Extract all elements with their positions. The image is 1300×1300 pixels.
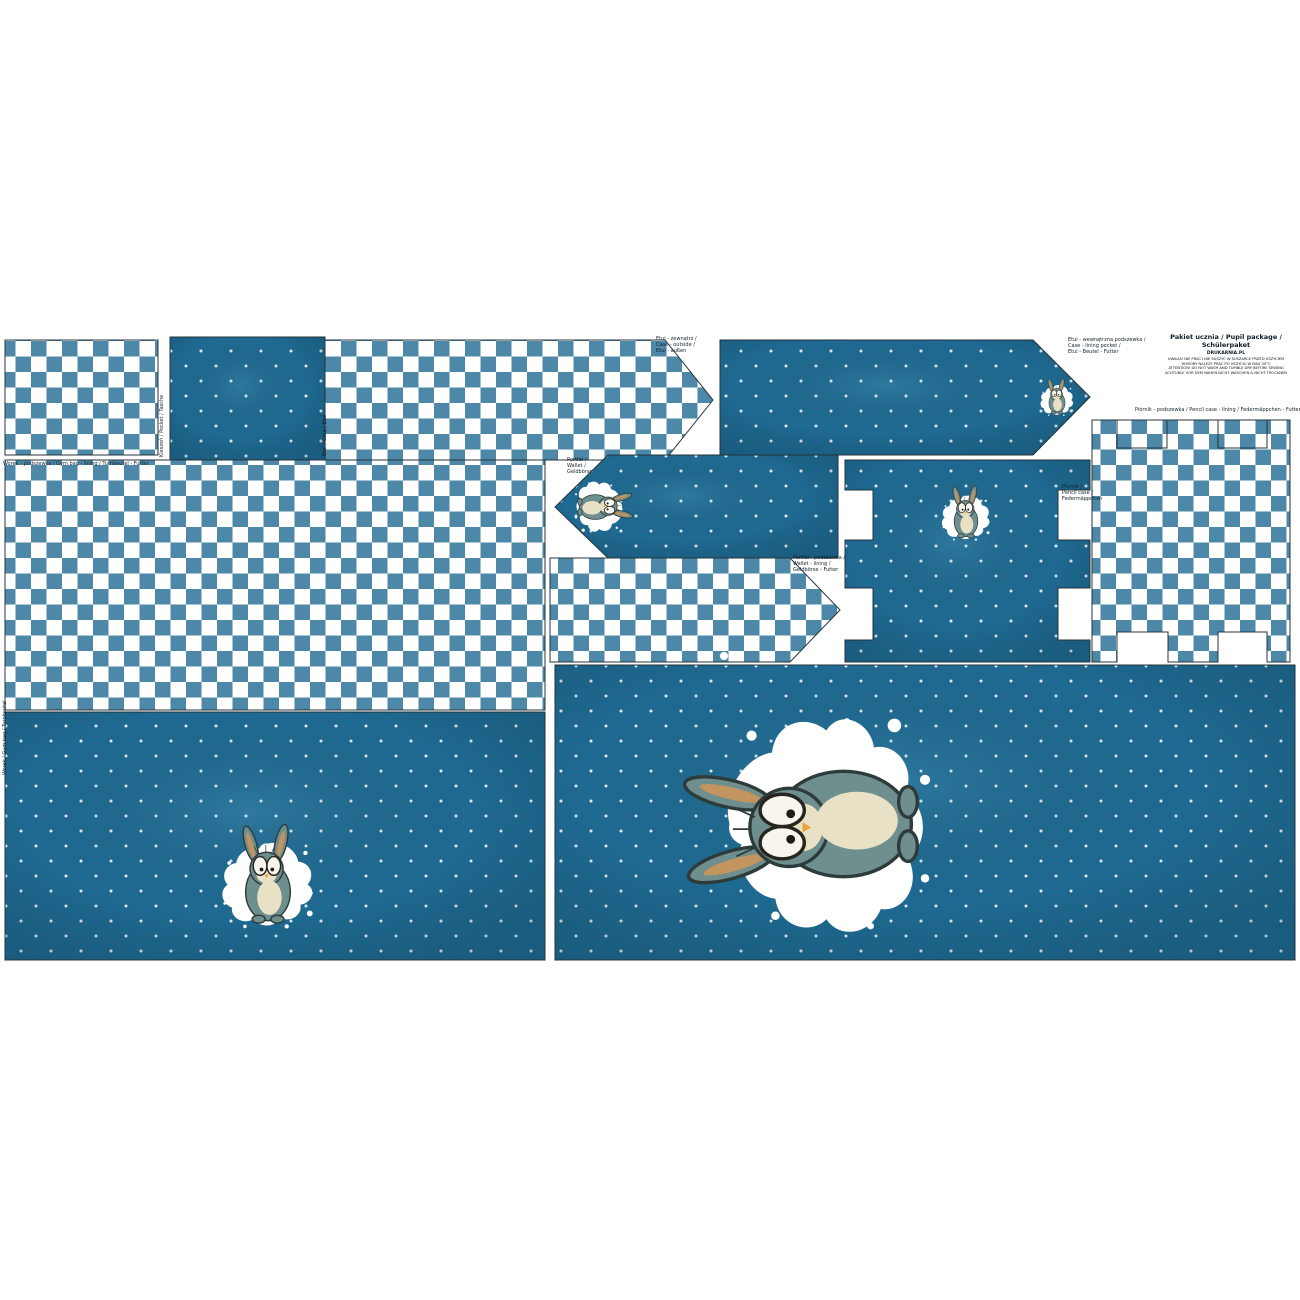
piece-pencilcase-lining-notched — [1092, 420, 1290, 662]
piece-gymbag-lining-checker-large — [5, 460, 545, 710]
panel-info-block: Pakiet ucznia / Pupil package / Schülerp… — [1156, 333, 1296, 375]
panel-gymbag-back — [555, 665, 1295, 960]
label-gymbag-lining: Worek - podszewka / Gym bag - lining / T… — [3, 461, 149, 467]
label-pencilcase-lining: Piórnik - podszewka / Pencil case - lini… — [1135, 407, 1300, 413]
piece-pocket-blue-square — [170, 337, 325, 460]
label-case-outside: Etui - zewnątrz / Case - outside / Etui … — [656, 336, 697, 354]
fabric-panel-photo: Pakiet ucznia / Pupil package / Schülerp… — [0, 0, 1300, 1300]
label-pencilcase: Piórnik / Pencil case / Federmäppchen — [1062, 484, 1102, 502]
panel-title: Pakiet ucznia / Pupil package / Schülerp… — [1156, 333, 1296, 349]
label-case-lining: Etui - wewnętrzna podszewka / Case - lin… — [1068, 337, 1146, 355]
label-case-vertical: Etui / Case / Etui — [322, 415, 328, 456]
piece-pocket-lining-checker — [5, 340, 158, 455]
label-wallet: Portfel / Wallet / Geldbörse — [567, 457, 592, 475]
label-pocket-vertical: Kieszeń / Pocket / Tasche — [159, 395, 165, 457]
care-note-line: ACHTUNG! VOR DEM NÄHEN NICHT WASCHEN & N… — [1156, 371, 1296, 376]
piece-case-lining-arrow — [720, 340, 1090, 455]
label-gymbag-vertical: Worek / Gym bag / Turnbeutel — [2, 700, 8, 775]
sewing-panel-graphic — [0, 0, 1300, 1300]
piece-case-outside-arrow — [325, 340, 713, 460]
buttonhole-mark — [720, 652, 728, 660]
label-wallet-lining: Portfel - podszewka / Wallet - lining / … — [793, 555, 845, 573]
piece-wallet-lining-arrow — [550, 558, 840, 662]
piece-pencilcase-notched — [845, 460, 1090, 662]
